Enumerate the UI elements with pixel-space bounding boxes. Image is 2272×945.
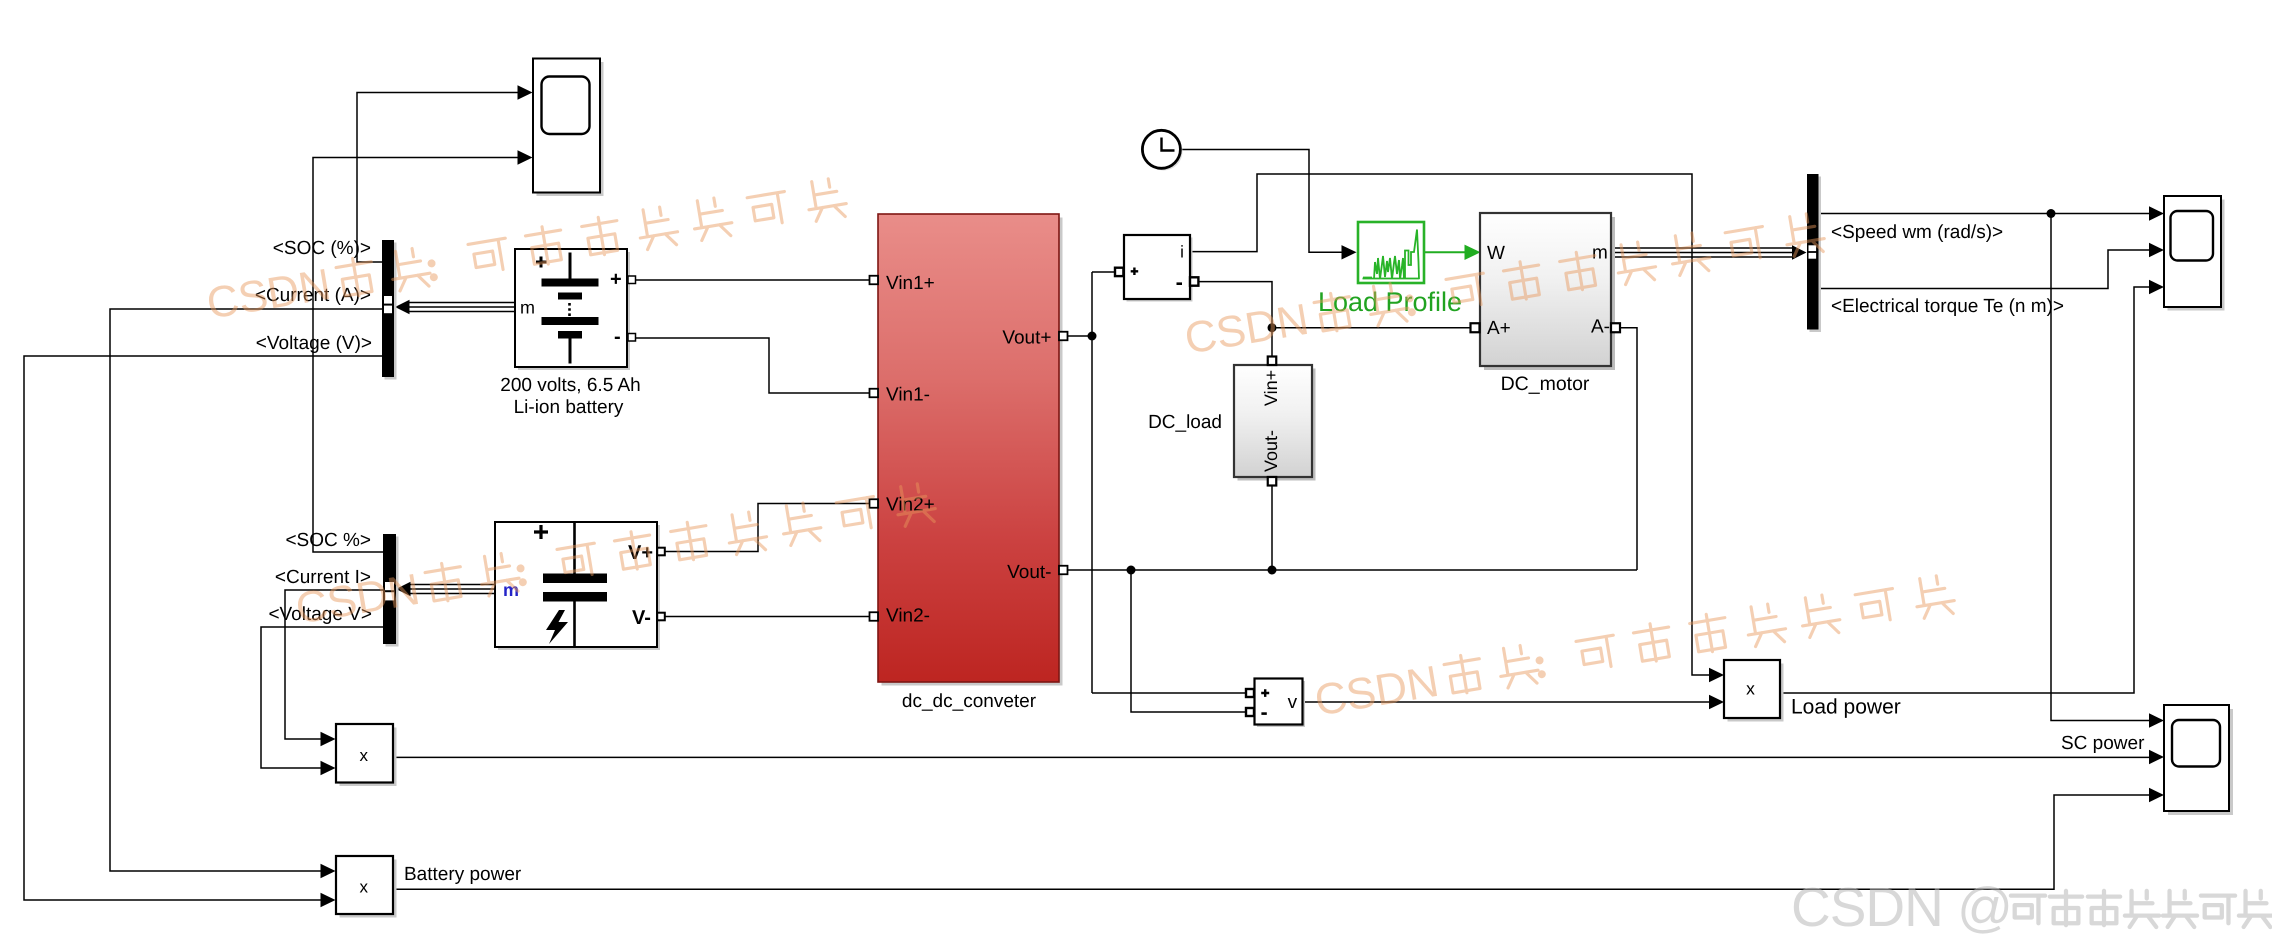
svg-text:i: i	[1180, 243, 1184, 262]
svg-text:<Electrical torque Te (n m)>: <Electrical torque Te (n m)>	[1831, 296, 2064, 317]
svg-text:m: m	[1592, 243, 1608, 264]
svg-text:x: x	[1746, 679, 1755, 699]
svg-text:W: W	[1487, 243, 1505, 264]
svg-text:v: v	[1288, 692, 1298, 713]
svg-text:Vin1-: Vin1-	[886, 385, 930, 406]
svg-text:<Speed wm (rad/s)>: <Speed wm (rad/s)>	[1831, 222, 2003, 243]
svg-text:200 volts, 6.5 Ah: 200 volts, 6.5 Ah	[500, 375, 641, 396]
svg-text:x: x	[359, 878, 368, 897]
svg-text:Li-ion battery: Li-ion battery	[514, 397, 624, 418]
svg-text:Vin2-: Vin2-	[886, 606, 930, 627]
svg-text:Load power: Load power	[1791, 696, 1901, 719]
svg-text:Vout-: Vout-	[1007, 562, 1051, 583]
svg-text:<SOC (%)>: <SOC (%)>	[273, 238, 371, 259]
svg-text:Battery power: Battery power	[404, 864, 522, 885]
svg-text:SC power: SC power	[2061, 733, 2145, 754]
svg-text:Vout-: Vout-	[1261, 430, 1281, 472]
svg-text:V-: V-	[632, 607, 651, 629]
svg-text:DC_load: DC_load	[1148, 412, 1222, 433]
svg-text:Vin+: Vin+	[1261, 370, 1281, 406]
svg-text:+: +	[610, 269, 622, 291]
svg-text:-: -	[614, 326, 621, 348]
svg-text:CSDN @: CSDN @	[1791, 876, 2012, 938]
svg-text:m: m	[520, 298, 535, 318]
svg-text:A+: A+	[1487, 318, 1511, 339]
svg-text:Vout+: Vout+	[1002, 328, 1051, 349]
svg-text:<Voltage (V)>: <Voltage (V)>	[256, 333, 372, 354]
svg-text:Vin1+: Vin1+	[886, 273, 935, 294]
svg-text:x: x	[359, 746, 368, 765]
svg-text:DC_motor: DC_motor	[1501, 373, 1590, 395]
svg-text:<SOC %>: <SOC %>	[285, 530, 371, 551]
svg-text:A-: A-	[1591, 317, 1610, 338]
svg-text:dc_dc_conveter: dc_dc_conveter	[902, 691, 1037, 712]
